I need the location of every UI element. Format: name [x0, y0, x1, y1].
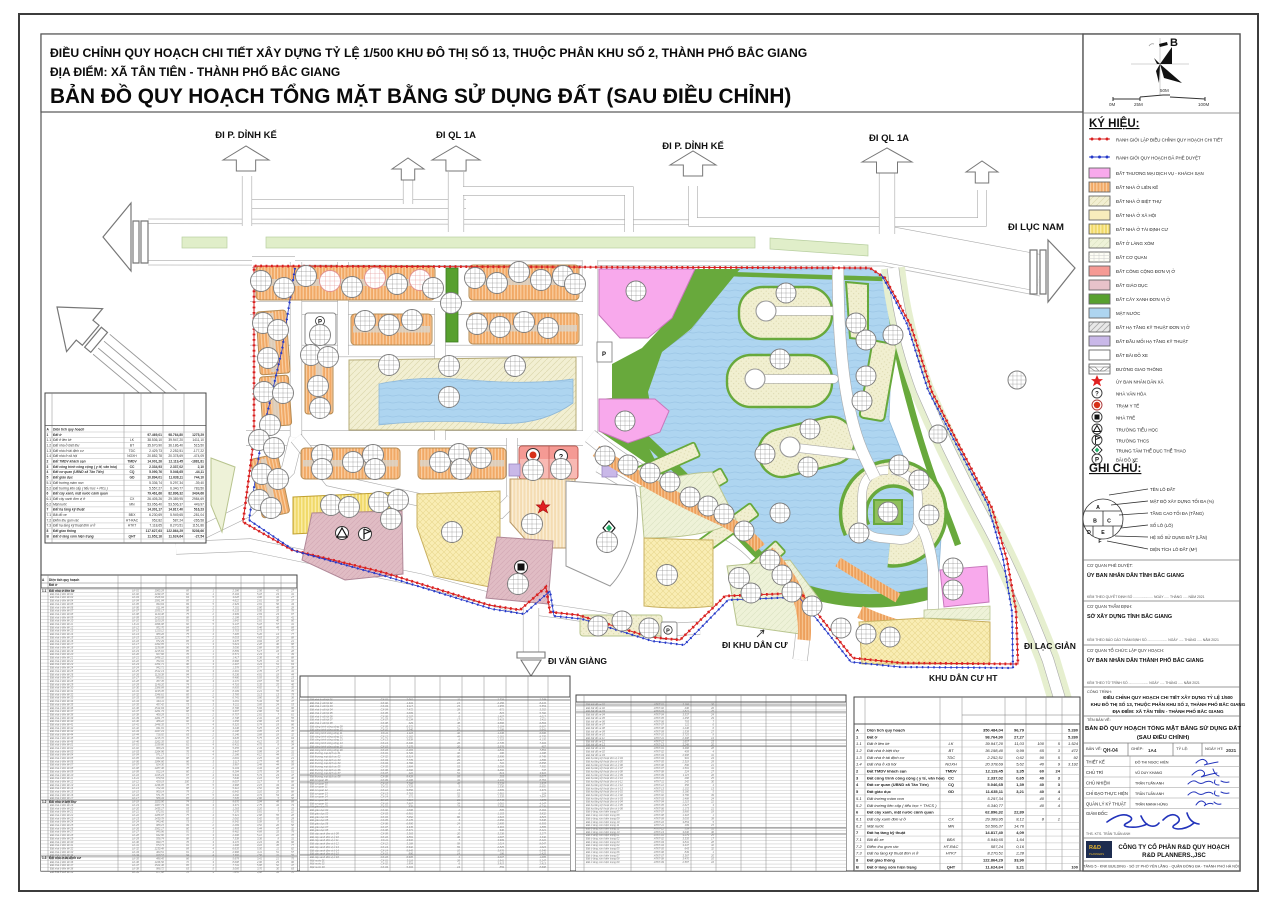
svg-text:P: P — [666, 629, 670, 635]
svg-text:7.3: 7.3 — [47, 524, 52, 528]
svg-text:KÈM THEO TỜ TRÌNH SỐ .........: KÈM THEO TỜ TRÌNH SỐ ...................… — [1087, 680, 1200, 685]
svg-text:TỶ LỆ:: TỶ LỆ: — [1176, 746, 1188, 751]
svg-text:TRUNG TÂM THỂ DỤC THỂ THAO: TRUNG TÂM THỂ DỤC THỂ THAO — [1116, 449, 1187, 454]
svg-text:-39,40: -39,40 — [195, 481, 205, 485]
svg-text:3,48: 3,48 — [257, 870, 263, 874]
svg-text:27,27: 27,27 — [1014, 734, 1025, 739]
svg-text:CHỦ TRÌ: CHỦ TRÌ — [1086, 770, 1103, 775]
svg-text:DIỆN TÍCH LÔ ĐẤT (M²): DIỆN TÍCH LÔ ĐẤT (M²) — [1150, 547, 1198, 552]
svg-text:CƠ QUAN PHÊ DUYỆT:: CƠ QUAN PHÊ DUYỆT: — [1087, 563, 1133, 568]
svg-text:5.280: 5.280 — [1068, 727, 1079, 732]
svg-text:HTKT-09: HTKT-09 — [654, 860, 665, 864]
svg-text:MẬT ĐỘ XÂY DỰNG TỐI ĐA (%): MẬT ĐỘ XÂY DỰNG TỐI ĐA (%) — [1150, 499, 1214, 504]
svg-text:CƠ QUAN THẨM ĐỊNH:: CƠ QUAN THẨM ĐỊNH: — [1087, 604, 1132, 609]
svg-text:KÈM THEO BÁO CÁO THẨM ĐỊNH SỐ: KÈM THEO BÁO CÁO THẨM ĐỊNH SỐ ..........… — [1087, 637, 1219, 642]
svg-text:Đất ở làng xóm hiện trạng: Đất ở làng xóm hiện trạng — [867, 864, 917, 869]
svg-text:2.429,73: 2.429,73 — [149, 449, 162, 453]
svg-text:5.949,65: 5.949,65 — [170, 513, 183, 517]
svg-text:20.378,69: 20.378,69 — [984, 762, 1004, 767]
svg-text:Đất cơ quan (UBND xã Tân Tiến): Đất cơ quan (UBND xã Tân Tiến) — [867, 782, 929, 787]
svg-text:NHÀ VĂN HÓA: NHÀ VĂN HÓA — [1116, 392, 1146, 397]
svg-text:SỞ XÂY DỰNG TỈNH BẮC GIANG: SỞ XÂY DỰNG TỈNH BẮC GIANG — [1087, 612, 1172, 620]
svg-text:5236,66: 5236,66 — [192, 529, 204, 533]
svg-text:ĐẤT Ở LÀNG XÓM: ĐẤT Ở LÀNG XÓM — [1116, 241, 1154, 246]
svg-text:BĐX: BĐX — [947, 837, 956, 842]
svg-text:65: 65 — [1040, 748, 1045, 753]
svg-text:ĐẤT CÂY XANH ĐƠN VỊ Ở: ĐẤT CÂY XANH ĐƠN VỊ Ở — [1116, 297, 1170, 302]
svg-text:MN: MN — [948, 823, 954, 828]
svg-text:Mặt nước: Mặt nước — [53, 502, 67, 506]
svg-text:LK: LK — [949, 741, 954, 746]
svg-text:53.506,37: 53.506,37 — [985, 823, 1004, 828]
svg-text:NOXH: NOXH — [945, 762, 957, 767]
svg-text:6: 6 — [47, 492, 49, 496]
svg-text:TRƯỜNG TIỂU HỌC: TRƯỜNG TIỂU HỌC — [1116, 428, 1158, 433]
svg-text:Đất giáo dục: Đất giáo dục — [53, 476, 73, 480]
svg-text:25M: 25M — [1134, 102, 1143, 107]
svg-text:ĐIỀU CHỈNH QUY HOẠCH CHI TIẾT: ĐIỀU CHỈNH QUY HOẠCH CHI TIẾT XÂY DỰNG T… — [1103, 693, 1233, 700]
svg-text:Đất cây xanh, mặt nước cảnh qu: Đất cây xanh, mặt nước cảnh quan — [867, 810, 934, 815]
svg-text:79.461,66: 79.461,66 — [147, 492, 162, 496]
svg-text:ĐIỀU CHỈNH QUY HOẠCH CHI TIẾT: ĐIỀU CHỈNH QUY HOẠCH CHI TIẾT XÂY DỰNG T… — [50, 45, 807, 60]
svg-text:ĐẤT CƠ QUAN: ĐẤT CƠ QUAN — [1116, 255, 1147, 260]
svg-text:2.334,93: 2.334,93 — [149, 465, 162, 469]
svg-text:BẢN VẼ:: BẢN VẼ: — [1086, 746, 1102, 751]
svg-text:90: 90 — [1040, 755, 1045, 760]
svg-text:Đất trường liên cấp ( tiểu học: Đất trường liên cấp ( tiểu học + THCS ) — [867, 803, 937, 808]
svg-text:-474,09: -474,09 — [193, 454, 204, 458]
svg-text:53.056,40: 53.056,40 — [147, 502, 162, 506]
svg-text:5,62: 5,62 — [1016, 762, 1025, 767]
svg-text:B: B — [856, 864, 859, 869]
svg-text:2.337,02: 2.337,02 — [170, 465, 183, 469]
svg-text:5.297,34: 5.297,34 — [987, 796, 1003, 801]
svg-text:117.627,63: 117.627,63 — [146, 529, 162, 533]
svg-text:2.252,51: 2.252,51 — [986, 755, 1003, 760]
svg-text:Đất ở liền kề: Đất ở liền kề — [53, 438, 72, 442]
svg-text:5.2: 5.2 — [856, 803, 862, 808]
svg-text:ĐẤT THƯƠNG MẠI DỊCH VỤ - KHÁCH: ĐẤT THƯƠNG MẠI DỊCH VỤ - KHÁCH SẠN — [1116, 171, 1204, 176]
svg-text:Điểm thu gom rác: Điểm thu gom rác — [53, 518, 79, 522]
svg-text:Đất nhà ở xã hội: Đất nhà ở xã hội — [53, 454, 77, 458]
svg-text:5: 5 — [47, 476, 49, 480]
svg-text:Điểm thu gom rác: Điểm thu gom rác — [867, 844, 899, 849]
svg-text:-265,58: -265,58 — [193, 518, 204, 522]
svg-text:HT-RAC: HT-RAC — [126, 518, 139, 522]
svg-text:GHI CHÚ:: GHI CHÚ: — [1089, 462, 1141, 475]
svg-text:?: ? — [1095, 392, 1099, 398]
svg-text:QH-04: QH-04 — [1103, 748, 1118, 754]
svg-text:Đất ở làng xóm hiện trạng: Đất ở làng xóm hiện trạng — [53, 534, 94, 538]
svg-text:SỐ LÔ (LÔ): SỐ LÔ (LÔ) — [1150, 523, 1173, 528]
svg-text:Đất ở liền kề: Đất ở liền kề — [867, 741, 890, 746]
svg-text:100: 100 — [1071, 864, 1078, 869]
svg-text:D: D — [1087, 530, 1091, 536]
svg-text:2: 2 — [47, 460, 49, 464]
svg-text:1: 1 — [47, 433, 49, 437]
svg-text:4,09: 4,09 — [1016, 830, 1025, 835]
svg-text:14.301,17: 14.301,17 — [147, 508, 162, 512]
svg-text:HT-RAC: HT-RAC — [944, 844, 959, 849]
svg-text:HỆ SỐ SỬ DỤNG ĐẤT (LẦN): HỆ SỐ SỬ DỤNG ĐẤT (LẦN) — [1150, 535, 1208, 540]
svg-text:Mặt nước 03: Mặt nước 03 — [310, 865, 325, 869]
svg-text:ĐẤT CÔNG CỘNG ĐƠN VỊ Ở: ĐẤT CÔNG CỘNG ĐƠN VỊ Ở — [1116, 269, 1175, 274]
svg-text:Đất cơ quan (UBND xã Tân Tiến): Đất cơ quan (UBND xã Tân Tiến) — [53, 470, 104, 474]
svg-text:CQ: CQ — [948, 782, 954, 787]
svg-text:ỦY BAN NHÂN DÂN THÀNH PHỐ BẮC: ỦY BAN NHÂN DÂN THÀNH PHỐ BẮC GIANG — [1087, 656, 1204, 664]
svg-text:0M: 0M — [1109, 102, 1116, 107]
svg-text:TMDV: TMDV — [127, 460, 137, 464]
svg-text:GD: GD — [948, 789, 954, 794]
svg-text:-44,11: -44,11 — [195, 470, 204, 474]
svg-text:VŨ DUY KHANG: VŨ DUY KHANG — [1135, 770, 1162, 775]
svg-text:Đất ở: Đất ở — [867, 734, 878, 739]
svg-text:26.405,26: 26.405,26 — [147, 497, 162, 501]
svg-text:TẦNG CAO TỐI ĐA (TẦNG): TẦNG CAO TỐI ĐA (TẦNG) — [1150, 511, 1204, 516]
svg-text:3,21: 3,21 — [1016, 789, 1025, 794]
svg-text:1,39: 1,39 — [1016, 782, 1025, 787]
svg-text:Đất nhà ở biệt thự: Đất nhà ở biệt thự — [867, 748, 900, 753]
svg-text:1.2: 1.2 — [42, 800, 47, 804]
svg-text:449,97: 449,97 — [194, 502, 204, 506]
svg-text:1.1: 1.1 — [47, 438, 52, 442]
svg-text:7: 7 — [47, 508, 49, 512]
svg-text:11.624,64: 11.624,64 — [169, 534, 184, 538]
svg-text:Đất cây xanh đơn vị ở: Đất cây xanh đơn vị ở — [53, 497, 86, 501]
svg-text:ĐỊA ĐIỂM: XÃ TÂN TIÊN - THÀNH: ĐỊA ĐIỂM: XÃ TÂN TIÊN - THÀNH PHỐ BẮC GI… — [50, 64, 340, 79]
svg-text:1.2: 1.2 — [856, 748, 862, 753]
svg-text:11.635,11: 11.635,11 — [986, 789, 1004, 794]
svg-text:11.638,11: 11.638,11 — [169, 476, 183, 480]
svg-text:Đất ở làng xóm hiện trạng 09: Đất ở làng xóm hiện trạng 09 — [586, 860, 620, 864]
svg-text:Diện tích quy hoạch: Diện tích quy hoạch — [53, 427, 84, 431]
svg-text:CHỦ NHIỆM: CHỦ NHIỆM — [1086, 781, 1110, 786]
svg-text:3: 3 — [47, 465, 49, 469]
svg-text:40: 40 — [1040, 762, 1045, 767]
svg-text:50M: 50M — [1160, 88, 1169, 93]
svg-text:BẢN ĐỒ QUY HOẠCH TỔNG MẶT BẰNG: BẢN ĐỒ QUY HOẠCH TỔNG MẶT BẰNG SỬ DỤNG Đ… — [1085, 724, 1241, 732]
svg-text:40: 40 — [1040, 803, 1045, 808]
svg-text:Đất hạ tầng kỹ thuật: Đất hạ tầng kỹ thuật — [53, 508, 85, 512]
svg-text:587,24: 587,24 — [173, 518, 183, 522]
svg-text:Đất cây xanh, mặt nước cảnh qu: Đất cây xanh, mặt nước cảnh quan — [53, 492, 108, 496]
svg-text:R&D PLANNERS.,JSC: R&D PLANNERS.,JSC — [1142, 852, 1206, 859]
svg-text:TDC: TDC — [129, 449, 136, 453]
svg-text:CC: CC — [948, 775, 954, 780]
svg-text:CQ: CQ — [130, 470, 135, 474]
svg-text:1.3: 1.3 — [856, 755, 862, 760]
svg-text:2,10: 2,10 — [198, 465, 205, 469]
svg-text:HTKT: HTKT — [128, 524, 137, 528]
svg-text:7.1: 7.1 — [47, 513, 52, 517]
svg-text:Đất giao thông: Đất giao thông — [53, 529, 76, 533]
svg-text:KHU DÂN CƯ HT: KHU DÂN CƯ HT — [929, 672, 998, 683]
svg-text:14,76: 14,76 — [1014, 823, 1025, 828]
svg-text:5.494: 5.494 — [407, 865, 414, 869]
svg-text:TRƯỜNG THCS: TRƯỜNG THCS — [1116, 439, 1149, 444]
svg-text:7.655: 7.655 — [233, 870, 240, 874]
svg-text:96,79: 96,79 — [1014, 727, 1025, 732]
svg-text:2021: 2021 — [1226, 748, 1237, 753]
svg-text:36.198,40: 36.198,40 — [985, 748, 1004, 753]
svg-text:ĐI P. DỈNH KẾ: ĐI P. DỈNH KẾ — [215, 129, 277, 141]
svg-text:7.1: 7.1 — [856, 837, 862, 842]
svg-text:TMDV: TMDV — [945, 769, 957, 774]
svg-text:8.270,51: 8.270,51 — [170, 524, 183, 528]
svg-text:97.469,01: 97.469,01 — [147, 433, 162, 437]
svg-text:ĐI VĂN GIÀNG: ĐI VĂN GIÀNG — [548, 656, 607, 666]
svg-text:Diện tích quy hoạch: Diện tích quy hoạch — [49, 578, 79, 582]
svg-text:4: 4 — [47, 470, 49, 474]
svg-text:MN: MN — [129, 502, 135, 506]
svg-text:3,35: 3,35 — [1016, 769, 1025, 774]
svg-text:8.270,51: 8.270,51 — [987, 851, 1003, 856]
svg-text:Đất nhà ở biệt thự: Đất nhà ở biệt thự — [53, 443, 80, 447]
svg-text:11.652,16: 11.652,16 — [148, 534, 163, 538]
svg-text:100M: 100M — [1198, 102, 1210, 107]
svg-text:(SAU ĐIỀU CHỈNH): (SAU ĐIỀU CHỈNH) — [1137, 734, 1189, 741]
svg-text:0,62: 0,62 — [1016, 755, 1025, 760]
svg-text:TDC: TDC — [947, 755, 955, 760]
svg-text:BT: BT — [130, 443, 134, 447]
svg-text:36.186,40: 36.186,40 — [168, 443, 183, 447]
svg-text:5.557,27: 5.557,27 — [149, 486, 162, 490]
svg-text:QHT: QHT — [129, 534, 136, 538]
svg-text:8: 8 — [47, 529, 49, 533]
svg-text:ĐẤT NHÀ Ở XÃ HỘI: ĐẤT NHÀ Ở XÃ HỘI — [1116, 213, 1156, 218]
svg-text:TRẦN MẠNH HÙNG: TRẦN MẠNH HÙNG — [1135, 802, 1168, 807]
svg-text:Đất hạ tầng kỹ thuật: Đất hạ tầng kỹ thuật — [867, 830, 906, 835]
svg-text:40: 40 — [1040, 789, 1045, 794]
svg-text:6.2: 6.2 — [856, 823, 862, 828]
svg-text:Đất trường mầm non: Đất trường mầm non — [53, 481, 84, 485]
svg-text:F: F — [1098, 539, 1101, 545]
svg-text:KÈM THEO QUYẾT ĐỊNH SỐ .......: KÈM THEO QUYẾT ĐỊNH SỐ .................… — [1087, 594, 1205, 599]
svg-text:Diện tích quy hoạch: Diện tích quy hoạch — [867, 727, 906, 732]
svg-text:Đất nhà ở tái định cư: Đất nhà ở tái định cư — [53, 449, 85, 453]
svg-text:A: A — [1096, 505, 1100, 511]
svg-text:HTKT: HTKT — [946, 851, 957, 856]
svg-text:Đất trường liên cấp ( tiểu học: Đất trường liên cấp ( tiểu học + Ptcs ) — [53, 486, 108, 490]
svg-text:5.2: 5.2 — [47, 486, 52, 490]
svg-text:977,48: 977,48 — [156, 870, 164, 874]
svg-text:ĐẤT NHÀ Ở BIỆT THỰ: ĐẤT NHÀ Ở BIỆT THỰ — [1116, 199, 1162, 204]
svg-text:29.389,95: 29.389,95 — [168, 497, 183, 501]
svg-text:GIÁM ĐỐC:: GIÁM ĐỐC: — [1086, 811, 1108, 816]
svg-text:QHT: QHT — [947, 864, 956, 869]
svg-text:12.119,45: 12.119,45 — [985, 769, 1003, 774]
svg-text:ĐẤT NHÀ Ở TÁI ĐỊNH CƯ: ĐẤT NHÀ Ở TÁI ĐỊNH CƯ — [1116, 227, 1168, 232]
svg-text:Đất giáo dục: Đất giáo dục — [867, 789, 892, 794]
svg-text:TẦNG 5 - KNK BUILDING - SỐ 37: TẦNG 5 - KNK BUILDING - SỐ 37 PHỐ YÊN LÃ… — [1083, 864, 1239, 869]
svg-text:122.864,29: 122.864,29 — [983, 858, 1004, 863]
svg-text:-177,22: -177,22 — [193, 449, 204, 453]
svg-text:6.2: 6.2 — [47, 502, 52, 506]
svg-text:82.896,32: 82.896,32 — [168, 492, 183, 496]
svg-text:38.536,10: 38.536,10 — [147, 438, 162, 442]
svg-text:Đất trường mầm non: Đất trường mầm non — [867, 796, 905, 801]
svg-text:R&D: R&D — [1089, 845, 1101, 851]
svg-text:C: C — [1107, 519, 1111, 525]
svg-text:62.896,32: 62.896,32 — [985, 810, 1004, 815]
svg-text:516,23: 516,23 — [194, 508, 204, 512]
svg-text:1.524: 1.524 — [1068, 741, 1079, 746]
svg-text:NHÀ TRẺ: NHÀ TRẺ — [1116, 416, 1135, 421]
svg-text:THS. KTS. TRẦN TUẤN ANH: THS. KTS. TRẦN TUẤN ANH — [1086, 832, 1131, 836]
svg-text:1.2: 1.2 — [47, 443, 52, 447]
svg-text:5.046,65: 5.046,65 — [170, 470, 183, 474]
svg-text:TÊN LÔ ĐẤT: TÊN LÔ ĐẤT — [1150, 487, 1176, 492]
svg-text:P: P — [602, 352, 606, 358]
svg-text:1411,10: 1411,10 — [192, 438, 204, 442]
svg-text:ĐI LỤC NAM: ĐI LỤC NAM — [1008, 222, 1064, 233]
svg-text:5.297,34: 5.297,34 — [170, 481, 183, 485]
svg-text:TÊN BẢN VẼ:: TÊN BẢN VẼ: — [1087, 717, 1111, 722]
svg-text:BẢN ĐỒ QUY HOẠCH TỔNG MẶT BẰNG: BẢN ĐỒ QUY HOẠCH TỔNG MẶT BẰNG SỬ DỤNG Đ… — [50, 84, 791, 108]
svg-text:KÝ HIỆU:: KÝ HIỆU: — [1089, 117, 1139, 130]
svg-text:Đất giao thông: Đất giao thông — [867, 858, 896, 863]
svg-text:6.340,77: 6.340,77 — [170, 486, 183, 490]
svg-text:3434,66: 3434,66 — [192, 492, 204, 496]
svg-text:1A4: 1A4 — [1148, 748, 1157, 753]
svg-text:NGÀY HT:: NGÀY HT: — [1205, 746, 1223, 751]
svg-text:Đất cây xanh đơn vị ở: Đất cây xanh đơn vị ở — [867, 816, 906, 821]
svg-text:BT: BT — [948, 748, 954, 753]
svg-text:ĐẤT HẠ TẦNG KỸ THUẬT ĐƠN VỊ Ở: ĐẤT HẠ TẦNG KỸ THUẬT ĐƠN VỊ Ở — [1116, 325, 1190, 330]
svg-text:A: A — [856, 727, 859, 732]
svg-text:2.252,51: 2.252,51 — [170, 449, 183, 453]
svg-text:29.389,95: 29.389,95 — [984, 816, 1004, 821]
svg-text:859: 859 — [500, 865, 505, 869]
svg-text:1.1: 1.1 — [42, 589, 47, 593]
svg-text:11.624,64: 11.624,64 — [985, 864, 1003, 869]
svg-text:1.1: 1.1 — [856, 741, 862, 746]
svg-text:Đất nhà ở tái định cư: Đất nhà ở tái định cư — [867, 755, 905, 760]
svg-text:Đất TMDV khách sạn: Đất TMDV khách sạn — [53, 460, 86, 464]
svg-text:8.698: 8.698 — [540, 865, 547, 869]
svg-text:92: 92 — [1074, 755, 1079, 760]
svg-text:BĐX: BĐX — [129, 513, 137, 517]
svg-text:40: 40 — [1040, 775, 1045, 780]
svg-text:Bãi đỗ xe: Bãi đỗ xe — [53, 512, 67, 517]
svg-text:ĐI QL 1A: ĐI QL 1A — [869, 133, 909, 144]
svg-text:7.118,65: 7.118,65 — [149, 524, 162, 528]
svg-text:Đất TMDV khách sạn: Đất TMDV khách sạn — [867, 769, 907, 774]
svg-text:ĐỊA ĐIỂM: XÃ TÂN TIÊN - THÀNH: ĐỊA ĐIỂM: XÃ TÂN TIÊN - THÀNH PHỐ BẮC GI… — [1112, 707, 1224, 714]
svg-text:B: B — [1170, 37, 1178, 49]
svg-text:0,65: 0,65 — [1016, 775, 1025, 780]
svg-text:10.894,01: 10.894,01 — [147, 476, 162, 480]
svg-text:Đất hạ tầng kỹ thuật đơn vị ở: Đất hạ tầng kỹ thuật đơn vị ở — [867, 851, 919, 856]
svg-text:5.949,65: 5.949,65 — [987, 837, 1003, 842]
svg-text:12.119,45: 12.119,45 — [169, 460, 184, 464]
svg-text:587,24: 587,24 — [991, 844, 1004, 849]
svg-text:ỦY BAN NHÂN DÂN TỈNH BẮC GIANG: ỦY BAN NHÂN DÂN TỈNH BẮC GIANG — [1087, 571, 1184, 579]
svg-text:PLANNERS: PLANNERS — [1089, 852, 1104, 856]
svg-text:350.484,04: 350.484,04 — [983, 727, 1004, 732]
svg-text:14.001,26: 14.001,26 — [147, 460, 162, 464]
svg-text:-1881,81: -1881,81 — [191, 460, 204, 464]
svg-text:CX-03: CX-03 — [381, 865, 389, 869]
svg-text:RANH GIỚI QUY HOẠCH ĐÃ PHÊ DUY: RANH GIỚI QUY HOẠCH ĐÃ PHÊ DUYỆT — [1116, 156, 1201, 161]
svg-text:9,99: 9,99 — [1016, 748, 1025, 753]
svg-text:2984,69: 2984,69 — [192, 497, 204, 501]
svg-text:2,28: 2,28 — [1015, 851, 1025, 856]
svg-text:8,12: 8,12 — [1016, 816, 1025, 821]
svg-text:CÔNG TY CỔ PHẦN R&D QUY HOẠCH: CÔNG TY CỔ PHẦN R&D QUY HOẠCH — [1118, 843, 1229, 851]
svg-text:ĐẤT BÃI ĐỖ XE: ĐẤT BÃI ĐỖ XE — [1116, 353, 1148, 358]
svg-text:E: E — [1101, 530, 1105, 536]
svg-text:3,21: 3,21 — [1016, 864, 1025, 869]
svg-text:1.4: 1.4 — [47, 454, 52, 458]
svg-text:B: B — [1093, 519, 1097, 525]
svg-text:ĐI QL 1A: ĐI QL 1A — [436, 130, 476, 141]
svg-text:5.090,76: 5.090,76 — [149, 470, 162, 474]
svg-text:Mặt nước: Mặt nước — [867, 823, 884, 828]
svg-text:ĐẤT GIÁO DỤC: ĐẤT GIÁO DỤC — [1116, 283, 1148, 288]
svg-text:22,89: 22,89 — [1014, 810, 1025, 815]
svg-text:ĐI P. DỈNH KẾ: ĐI P. DỈNH KẾ — [662, 140, 724, 152]
svg-text:7.3: 7.3 — [856, 851, 862, 856]
svg-text:1.3: 1.3 — [47, 449, 52, 453]
svg-text:TRẠM Y TẾ: TRẠM Y TẾ — [1116, 404, 1139, 409]
svg-text:Đất công trình công cộng ( y t: Đất công trình công cộng ( y tế, văn hóa… — [53, 465, 117, 469]
svg-text:0,16: 0,16 — [1016, 844, 1025, 849]
svg-text:1275,29: 1275,29 — [192, 433, 204, 437]
svg-text:CHỈ ĐẠO THỰC HIỆN: CHỈ ĐẠO THỰC HIỆN — [1086, 791, 1128, 796]
svg-text:Đất ở: Đất ở — [53, 433, 62, 437]
svg-text:122.864,29: 122.864,29 — [166, 529, 183, 533]
svg-text:39.947,20: 39.947,20 — [985, 741, 1004, 746]
svg-text:20.852,78: 20.852,78 — [147, 454, 162, 458]
svg-text:ĐI LẠC GIẢN: ĐI LẠC GIẢN — [1024, 640, 1076, 651]
svg-text:472: 472 — [1071, 748, 1078, 753]
svg-text:NOXH: NOXH — [127, 454, 137, 458]
svg-text:7.2: 7.2 — [47, 518, 52, 522]
svg-text:6.1: 6.1 — [856, 816, 862, 821]
svg-text:5.1: 5.1 — [47, 481, 52, 485]
svg-text:CƠ QUAN TỔ CHỨC LẬP QUY HOẠCH:: CƠ QUAN TỔ CHỨC LẬP QUY HOẠCH: — [1087, 648, 1164, 653]
svg-text:Đất công trình công cộng ( y t: Đất công trình công cộng ( y tế, văn hóa… — [867, 775, 945, 780]
svg-text:-281,04: -281,04 — [193, 513, 204, 517]
svg-text:7.2: 7.2 — [856, 844, 862, 849]
svg-text:Đất nhà ở liền kề 39: Đất nhà ở liền kề 39 — [50, 870, 74, 874]
svg-text:98.764,80: 98.764,80 — [168, 433, 183, 437]
svg-text:6.340,77: 6.340,77 — [987, 803, 1003, 808]
svg-text:952,82: 952,82 — [152, 518, 162, 522]
svg-text:2.587: 2.587 — [682, 860, 690, 864]
svg-text:6.1: 6.1 — [47, 497, 52, 501]
svg-text:MẶT NƯỚC: MẶT NƯỚC — [1116, 311, 1140, 316]
svg-text:TRẦN TUẤN ANH: TRẦN TUẤN ANH — [1135, 782, 1164, 786]
svg-text:40: 40 — [1040, 796, 1045, 801]
svg-text:1151,86: 1151,86 — [192, 524, 204, 528]
svg-text:THIẾT KẾ: THIẾT KẾ — [1086, 760, 1105, 765]
svg-text:6.230,69: 6.230,69 — [149, 513, 162, 517]
svg-text:39.947,20: 39.947,20 — [168, 438, 183, 442]
svg-text:ĐỖ THI NGỌC HIỀN: ĐỖ THI NGỌC HIỀN — [1135, 760, 1169, 765]
svg-text:ĐI KHU DÂN CƯ: ĐI KHU DÂN CƯ — [722, 639, 789, 650]
svg-text:CX: CX — [948, 816, 954, 821]
svg-text:GD: GD — [130, 476, 136, 480]
svg-text:Đất ở: Đất ở — [49, 583, 58, 587]
svg-text:60: 60 — [1040, 769, 1045, 774]
svg-text:TRẦN TUẤN ANH: TRẦN TUẤN ANH — [1135, 792, 1164, 796]
svg-text:ỦY BAN NHÂN DÂN XÃ: ỦY BAN NHÂN DÂN XÃ — [1116, 380, 1164, 385]
svg-text:33,90: 33,90 — [1014, 858, 1025, 863]
svg-text:1: 1 — [1058, 816, 1060, 821]
svg-text:24: 24 — [1056, 769, 1061, 774]
